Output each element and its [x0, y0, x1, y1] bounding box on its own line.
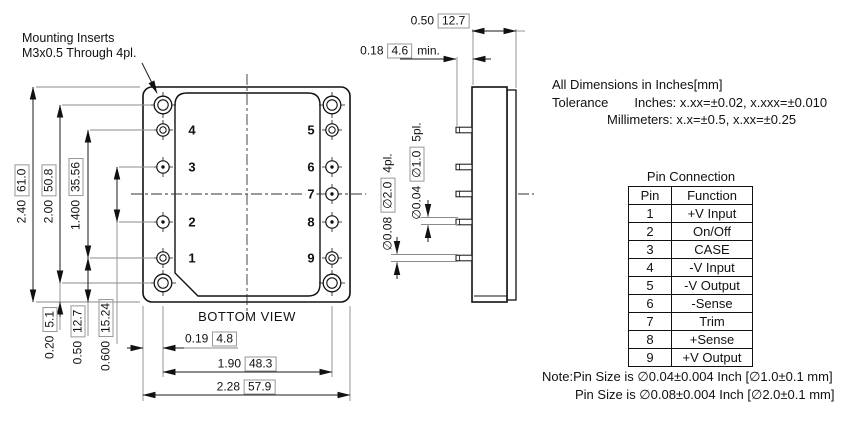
table-row: 7Trim [629, 313, 753, 331]
dim-value: 0.19 [185, 332, 208, 346]
dim-mm-box: 57.9 [244, 380, 275, 395]
dim-mm-box: 12.7 [438, 14, 469, 29]
dim-mm-box: 12.7 [71, 306, 86, 337]
dim-value: 0.600 [99, 341, 113, 371]
side-view-outline [472, 87, 516, 302]
bottom-view-outline [143, 87, 350, 302]
dim-mm-box: 4.8 [212, 332, 237, 347]
dim-pin-span: 1.40035.56 [69, 158, 84, 230]
table-row: 2On/Off [629, 223, 753, 241]
dim-mm-box: ∅1.0 [410, 147, 425, 182]
dim-pin-col-span: 1.9048.3 [218, 357, 277, 372]
pin-label-5: 5 [305, 124, 316, 137]
pin-table-header-row: Pin Function [629, 187, 753, 205]
pin-cell: 9 [629, 349, 672, 367]
pin-label-7: 7 [305, 188, 316, 201]
dim-value: 0.50 [411, 14, 434, 28]
info-line-units: All Dimensions in Inches[mm] [552, 76, 827, 94]
tolerance-mm: Millimeters: x.x=±0.5, x.xx=±0.25 [607, 111, 827, 129]
pin-table-title: Pin Connection [628, 169, 754, 184]
dim-overall-width: 2.2857.9 [217, 380, 276, 395]
function-cell: Trim [672, 313, 753, 331]
pin-connection-section: Pin Connection Pin Function 1+V Input 2O… [628, 169, 754, 367]
pin-label-3: 3 [186, 161, 197, 174]
pin-label-8: 8 [305, 216, 316, 229]
function-cell: CASE [672, 241, 753, 259]
function-cell: -V Input [672, 259, 753, 277]
side-view-pins [456, 127, 472, 261]
table-row: 6-Sense [629, 295, 753, 313]
bottom-view-caption: BOTTOM VIEW [198, 309, 296, 324]
dim-mm-box: 61.0 [15, 165, 30, 196]
function-cell: +V Input [672, 205, 753, 223]
dim-mm-box: 35.56 [69, 158, 84, 196]
dim-value: 0.20 [43, 336, 57, 359]
dim-overall-height: 2.4061.0 [15, 165, 30, 224]
dim-edge-to-pin-col: 0.194.8 [185, 332, 237, 347]
dim-mm-box: 15.24 [99, 299, 114, 337]
pin-label-1: 1 [186, 252, 197, 265]
pin-label-9: 9 [305, 252, 316, 265]
table-row: 5-V Output [629, 277, 753, 295]
table-row: 4-V Input [629, 259, 753, 277]
pin-label-4: 4 [186, 124, 197, 137]
dimension-info-block: All Dimensions in Inches[mm] ToleranceIn… [552, 76, 827, 129]
dim-value: ∅0.08 [381, 217, 395, 251]
mounting-note-line2: M3x0.5 Through 4pl. [22, 46, 136, 61]
dim-value: 0.18 [360, 44, 383, 58]
mounting-note-line1: Mounting Inserts [22, 31, 136, 46]
info-line-tolerance: ToleranceInches: x.xx=±0.02, x.xxx=±0.01… [552, 94, 827, 112]
dim-value: ∅0.04 [410, 186, 424, 220]
pin-label-2: 2 [186, 216, 197, 229]
pin-size-note-2: Pin Size is ∅0.08±0.004 Inch [∅2.0±0.1 m… [575, 387, 835, 403]
function-cell: +V Output [672, 349, 753, 367]
pin-cell: 6 [629, 295, 672, 313]
dim-mm-box: 50.8 [42, 165, 57, 196]
dim-mounting-span: 2.0050.8 [42, 165, 57, 224]
engineering-drawing-page: Mounting Inserts M3x0.5 Through 4pl. 2.4… [0, 0, 849, 431]
table-row: 3CASE [629, 241, 753, 259]
pin-cell: 3 [629, 241, 672, 259]
table-row: 8+Sense [629, 331, 753, 349]
pin-col-header: Pin [629, 187, 672, 205]
dim-value: 1.90 [218, 357, 241, 371]
dim-value: 0.50 [71, 341, 85, 364]
function-cell: -V Output [672, 277, 753, 295]
mounting-inserts-note: Mounting Inserts M3x0.5 Through 4pl. [22, 31, 136, 61]
pin-label-6: 6 [305, 161, 316, 174]
dim-mm-box: 4.6 [388, 44, 413, 59]
dim-value: 2.40 [15, 200, 29, 223]
dim-mm-box: 5.1 [43, 307, 58, 332]
dim-pin-length: 0.184.6min. [360, 44, 440, 59]
pin-cell: 4 [629, 259, 672, 277]
dim-suffix: 4pl. [381, 153, 395, 172]
dim-value: 2.28 [217, 380, 240, 394]
function-cell: +Sense [672, 331, 753, 349]
tolerance-inches: Inches: x.xx=±0.02, x.xxx=±0.010 [634, 95, 827, 110]
dim-pin-pitch: 0.60015.24 [99, 299, 114, 371]
dim-pin-dia-large: ∅0.08∅2.04pl. [381, 153, 396, 250]
dim-edge-to-hole: 0.205.1 [43, 307, 58, 359]
pin-cell: 5 [629, 277, 672, 295]
dim-value: 1.400 [69, 200, 83, 230]
dim-value: 2.00 [42, 200, 56, 223]
function-cell: -Sense [672, 295, 753, 313]
function-col-header: Function [672, 187, 753, 205]
dim-mm-box: ∅2.0 [381, 178, 396, 213]
table-row: 9+V Output [629, 349, 753, 367]
pin-cell: 2 [629, 223, 672, 241]
pin-cell: 8 [629, 331, 672, 349]
dim-suffix: min. [417, 44, 440, 58]
tolerance-label: Tolerance [552, 95, 608, 110]
function-cell: On/Off [672, 223, 753, 241]
pin-size-note-1: Note:Pin Size is ∅0.04±0.004 Inch [∅1.0±… [542, 369, 833, 385]
pin-connection-table: Pin Function 1+V Input 2On/Off 3CASE 4-V… [628, 186, 753, 367]
dim-edge-to-pin-row: 0.5012.7 [71, 306, 86, 365]
pin-cell: 7 [629, 313, 672, 331]
dim-suffix: 5pl. [410, 122, 424, 141]
table-row: 1+V Input [629, 205, 753, 223]
dim-case-depth: 0.5012.7 [411, 14, 470, 29]
pin-cell: 1 [629, 205, 672, 223]
dim-pin-dia-small: ∅0.04∅1.05pl. [410, 122, 425, 219]
dim-mm-box: 48.3 [245, 357, 276, 372]
